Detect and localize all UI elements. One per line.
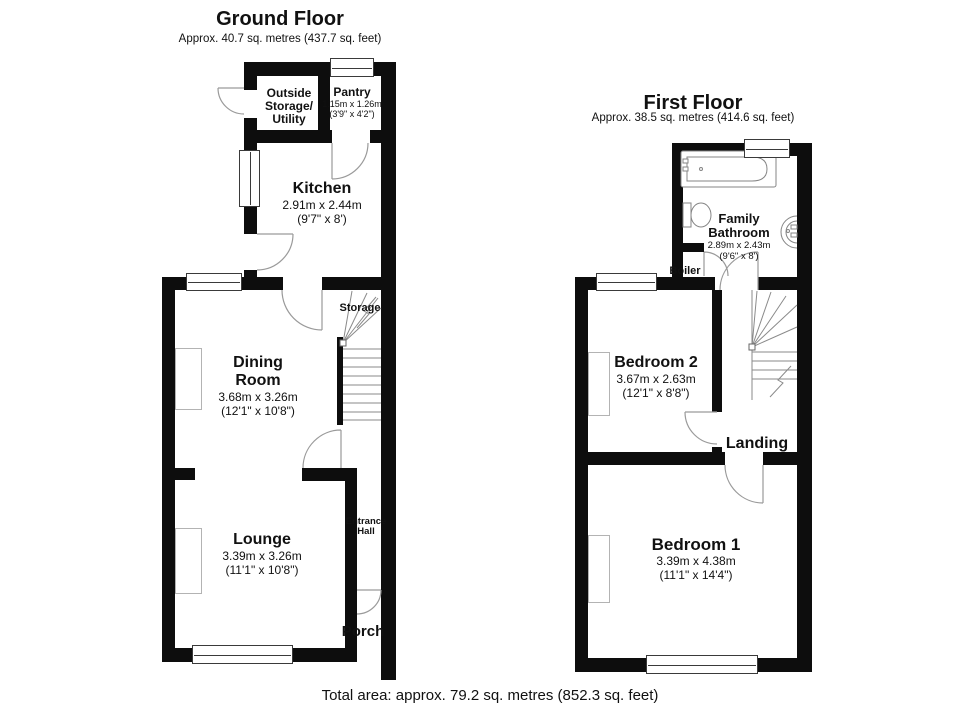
gf-stairs-winder-lines [343,291,381,343]
room-label-family-bathroom: Family Bathroom 2.89m x 2.43m (9'6" x 8'… [679,212,799,262]
entrance-hall-label: Entrance Hall [340,517,392,538]
first-floor-title: First Floor [593,92,793,114]
dining-window [186,273,242,291]
pantry-door [332,143,368,179]
bathtub-drain [700,168,703,171]
room-label-bedroom-2: Bedroom 2 3.67m x 2.63m (12'1" x 8'8") [576,354,736,400]
room-label-lounge: Lounge 3.39m x 3.26m (11'1" x 10'8") [182,531,342,577]
bedroom2-window [596,273,657,291]
kitchen-dining-door [282,290,322,330]
room-label-dining-room: Dining Room 3.68m x 3.26m (12'1" x 10'8"… [178,354,338,418]
dining-hall-door [303,430,341,468]
first-floor-stairs [749,290,797,400]
bedroom1-door [725,465,763,503]
storage-exterior-door [218,88,244,114]
boiler-label: Boiler [662,265,708,277]
room-label-bedroom-1: Bedroom 1 3.39m x 4.38m (11'1" x 14'4") [616,535,776,582]
ff-stairs-newel [749,344,755,350]
understairs-storage-label: Storage [334,302,386,314]
total-area-text: Total area: approx. 79.2 sq. metres (852… [230,688,750,705]
pantry-window [330,58,374,77]
ground-floor-subtitle: Approx. 40.7 sq. metres (437.7 sq. feet) [155,33,405,46]
kitchen-side-door [257,234,293,270]
ground-floor-title: Ground Floor [180,8,380,30]
landing-label: Landing [712,435,802,453]
bathtub-tap [683,167,688,171]
bathtub-tap [683,159,688,163]
floorplan-page: Ground Floor Approx. 40.7 sq. metres (43… [0,0,980,712]
lounge-window [192,645,293,664]
room-label-kitchen: Kitchen 2.91m x 2.44m (9'7" x 8') [242,180,402,226]
first-floor-subtitle: Approx. 38.5 sq. metres (414.6 sq. feet) [568,112,818,125]
room-label-pantry: Pantry 1.15m x 1.26m (3'9" x 4'2") [312,86,392,119]
gf-stairs-newel [340,340,346,346]
bedroom1-window [646,655,758,674]
ff-stairs-break-line [770,366,791,397]
front-door [357,590,381,614]
porch-label: Porch [337,624,389,641]
bathroom-window [744,139,790,158]
ff-stairs-winder-lines [752,291,797,347]
